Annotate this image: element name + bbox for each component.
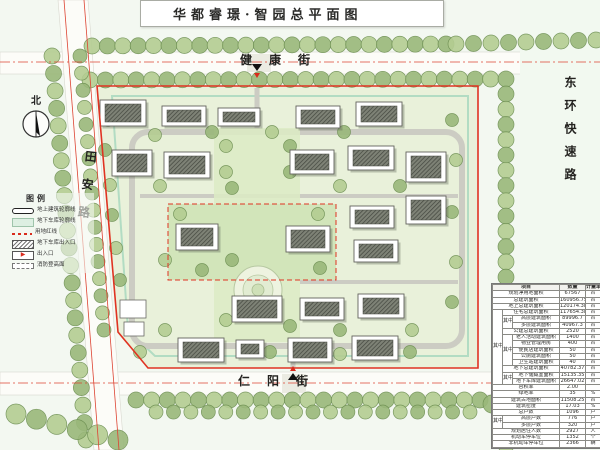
- tree: [498, 254, 514, 270]
- tree: [314, 262, 327, 275]
- street-label-bottom: 仁阳街: [238, 372, 325, 389]
- legend: 图例 地上建筑轮廓线地下车库轮廓线用地红线地下车库出入口▶出入口消防登高面: [12, 193, 94, 273]
- tree: [220, 314, 233, 327]
- tree: [159, 254, 172, 267]
- tree: [359, 71, 375, 87]
- table-cell: 地下储藏室面积: [513, 372, 560, 378]
- tree: [423, 36, 439, 52]
- table-cell: 辆: [586, 441, 600, 447]
- building-footprint: [350, 206, 397, 231]
- tree: [289, 405, 303, 419]
- building-footprint: [406, 196, 449, 227]
- tree: [128, 392, 144, 408]
- building-footprint: [178, 338, 227, 365]
- tree: [421, 71, 437, 87]
- tree: [498, 147, 514, 163]
- garage-outline-icon: [12, 218, 34, 227]
- tree: [219, 405, 233, 419]
- tree: [450, 154, 463, 167]
- tree: [207, 37, 223, 53]
- tree: [192, 37, 208, 53]
- building-outline-icon: [12, 208, 34, 214]
- tree: [467, 71, 483, 87]
- tree: [498, 71, 514, 87]
- tree: [99, 38, 115, 54]
- table-cell: 40967.3: [560, 322, 586, 328]
- tree: [428, 405, 442, 419]
- table-cell: 2366: [560, 441, 586, 447]
- tree: [498, 101, 514, 117]
- tree: [498, 178, 514, 194]
- tree: [251, 72, 267, 88]
- tree: [498, 239, 514, 255]
- tree: [393, 405, 407, 419]
- tree: [75, 66, 89, 80]
- tree: [146, 38, 162, 54]
- table-row: 非机动车停车位2366辆: [493, 441, 600, 447]
- tree: [306, 405, 320, 419]
- tree: [501, 35, 517, 51]
- title-box: 华都睿璟·智园总平面图: [140, 0, 444, 27]
- table-cell: 15135.35: [560, 372, 586, 378]
- building-footprint: [356, 102, 405, 129]
- tree: [53, 153, 69, 169]
- table-cell: 120174.38: [560, 303, 586, 309]
- tree: [46, 65, 62, 81]
- tree: [266, 126, 279, 139]
- tree: [282, 72, 298, 88]
- table-cell: 89996.7: [560, 316, 586, 322]
- table-cell: 其中: [493, 310, 503, 385]
- tree: [226, 254, 239, 267]
- legend-item: 消防登高面: [12, 262, 94, 270]
- tree: [334, 348, 347, 361]
- tree: [184, 405, 198, 419]
- tree: [341, 405, 355, 419]
- building-footprint: [232, 296, 285, 325]
- table-cell: 便民店建筑面积: [513, 347, 560, 353]
- legend-item-label: 出入口: [37, 252, 54, 258]
- building-footprint: [236, 340, 267, 361]
- building-footprint: [288, 338, 335, 365]
- tree: [344, 71, 360, 87]
- building-footprint: [100, 100, 149, 129]
- legend-item: 地下车库轮廓线: [12, 218, 94, 226]
- tree: [376, 405, 390, 419]
- legend-item-label: 用地红线: [35, 230, 57, 236]
- tree: [72, 362, 88, 378]
- tree: [267, 72, 283, 88]
- tree: [6, 404, 26, 424]
- building-footprint: [406, 152, 449, 185]
- tree: [93, 272, 107, 286]
- tree: [254, 405, 268, 419]
- tree: [498, 86, 514, 102]
- table-cell: 11508.25: [560, 397, 586, 403]
- legend-item-label: 消防登高面: [37, 263, 65, 269]
- tree: [226, 182, 239, 195]
- tree: [375, 71, 391, 87]
- tree: [96, 306, 110, 320]
- tree: [446, 405, 460, 419]
- tree: [94, 289, 108, 303]
- building-footprint: [176, 224, 221, 253]
- tree: [223, 37, 239, 53]
- tree: [498, 162, 514, 178]
- tree: [446, 114, 459, 127]
- tree: [446, 296, 459, 309]
- legend-item: 用地红线: [12, 229, 94, 237]
- table-cell: 其中: [493, 416, 503, 429]
- indicator-table: 项目数量计量单位规划净用地面积67567㎡总建筑面积160956.75㎡地上总建…: [491, 283, 600, 449]
- building-footprint: [352, 336, 401, 363]
- tree: [483, 35, 499, 51]
- table-cell: 160956.75: [560, 297, 586, 303]
- tree: [298, 71, 314, 87]
- tree: [201, 405, 215, 419]
- street-label-right: 东环快速路: [562, 76, 579, 191]
- building-footprint: [162, 106, 209, 129]
- tree: [323, 405, 337, 419]
- tree: [390, 71, 406, 87]
- tree: [236, 405, 250, 419]
- page-title: 华都睿璟·智园总平面图: [141, 4, 363, 23]
- table-cell: 其中: [503, 335, 513, 366]
- tree: [64, 275, 80, 291]
- site-plan-page: 华都睿璟·智园总平面图 北 健康街 仁阳街 田安路 东环快速路 图例 地上建筑轮…: [0, 0, 600, 450]
- building-footprint: [164, 152, 213, 181]
- tree: [79, 118, 93, 132]
- legend-item-label: 地下车库轮廓线: [37, 219, 76, 225]
- entrance-icon: ▶: [12, 251, 34, 260]
- tree: [284, 320, 297, 333]
- tree: [346, 37, 362, 53]
- tree: [466, 36, 482, 52]
- tree: [26, 409, 46, 429]
- north-arrow-icon: [19, 107, 53, 141]
- table-cell: 计量单位: [586, 285, 600, 291]
- table-cell: 其中: [503, 372, 513, 385]
- tree: [67, 310, 83, 326]
- building-footprint: [218, 108, 263, 129]
- tree: [115, 38, 131, 54]
- street-label-top: 健康街: [240, 51, 327, 68]
- tree: [334, 324, 347, 337]
- tree: [220, 166, 233, 179]
- table-cell: 其中: [503, 316, 513, 329]
- tree: [166, 405, 180, 419]
- tree: [73, 49, 87, 63]
- table-cell: 40782.37: [560, 366, 586, 372]
- tree: [518, 34, 534, 50]
- tree: [312, 208, 325, 221]
- table-cell: 非机动车停车位: [493, 441, 560, 447]
- building-footprint: [354, 240, 401, 265]
- legend-item: 地下车库出入口: [12, 240, 94, 248]
- tree: [78, 100, 92, 114]
- building-footprint: [300, 298, 347, 323]
- tree: [73, 380, 89, 396]
- tree: [376, 36, 392, 52]
- tree: [452, 71, 468, 87]
- tree: [330, 37, 346, 53]
- tree: [448, 36, 464, 52]
- tree: [70, 345, 86, 361]
- table-cell: 26647.02: [560, 378, 586, 384]
- building-footprint: [348, 146, 397, 173]
- tree: [498, 193, 514, 209]
- garage-entrance-icon: [12, 240, 34, 249]
- building-footprint: [112, 150, 155, 179]
- building-footprint: [290, 150, 337, 177]
- tree: [334, 180, 347, 193]
- tree: [406, 71, 422, 87]
- tree: [81, 135, 95, 149]
- tree: [76, 83, 90, 97]
- tree: [463, 405, 477, 419]
- table-cell: 卫生站建筑面积: [513, 360, 560, 366]
- tree: [55, 170, 71, 186]
- tree: [149, 405, 163, 419]
- tree: [84, 38, 100, 54]
- service-buildings: [120, 300, 146, 336]
- tree: [394, 180, 407, 193]
- tree: [392, 36, 408, 52]
- north-arrow: 北: [14, 96, 58, 145]
- tree: [149, 129, 162, 142]
- table-cell: 地下车库建筑面积: [513, 378, 560, 384]
- table-row: 其中地下储藏室面积15135.35㎡: [493, 372, 600, 378]
- tree: [361, 36, 377, 52]
- tree: [329, 71, 345, 87]
- tree: [271, 405, 285, 419]
- tree: [406, 324, 419, 337]
- tree: [407, 36, 423, 52]
- fire-access-icon: [12, 263, 34, 269]
- building-footprint: [286, 226, 333, 255]
- tree: [176, 37, 192, 53]
- tree: [196, 264, 209, 277]
- tree: [161, 38, 177, 54]
- tree: [99, 144, 112, 157]
- north-label: 北: [14, 96, 58, 107]
- building-footprint: [296, 106, 343, 131]
- legend-item-label: 地下车库出入口: [37, 241, 76, 247]
- legend-item: ▶出入口: [12, 251, 94, 259]
- tree: [404, 346, 417, 359]
- tree: [498, 132, 514, 148]
- tree: [47, 414, 67, 434]
- tree: [498, 208, 514, 224]
- tree: [66, 292, 82, 308]
- table-cell: 老人活动建筑面积: [513, 335, 560, 341]
- tree: [498, 223, 514, 239]
- tree: [67, 420, 87, 440]
- tree: [536, 34, 552, 50]
- tree: [220, 140, 233, 153]
- table-cell: 117654.38: [560, 310, 586, 316]
- tree: [313, 71, 329, 87]
- tree: [498, 117, 514, 133]
- tree: [411, 405, 425, 419]
- tree: [159, 324, 172, 337]
- tree: [436, 71, 452, 87]
- tree: [130, 38, 146, 54]
- tree: [358, 405, 372, 419]
- tree: [154, 180, 167, 193]
- tree: [553, 33, 569, 49]
- tree: [174, 208, 187, 221]
- legend-header: 图例: [26, 193, 94, 204]
- tree: [114, 274, 127, 287]
- red-line-icon: [12, 233, 32, 235]
- tree: [450, 256, 463, 269]
- tree: [69, 327, 85, 343]
- tree: [571, 33, 587, 49]
- legend-item-label: 地上建筑轮廓线: [37, 208, 76, 214]
- tree: [483, 71, 499, 87]
- building-footprint: [358, 294, 407, 321]
- tree: [75, 397, 91, 413]
- legend-item: 地上建筑轮廓线: [12, 207, 94, 215]
